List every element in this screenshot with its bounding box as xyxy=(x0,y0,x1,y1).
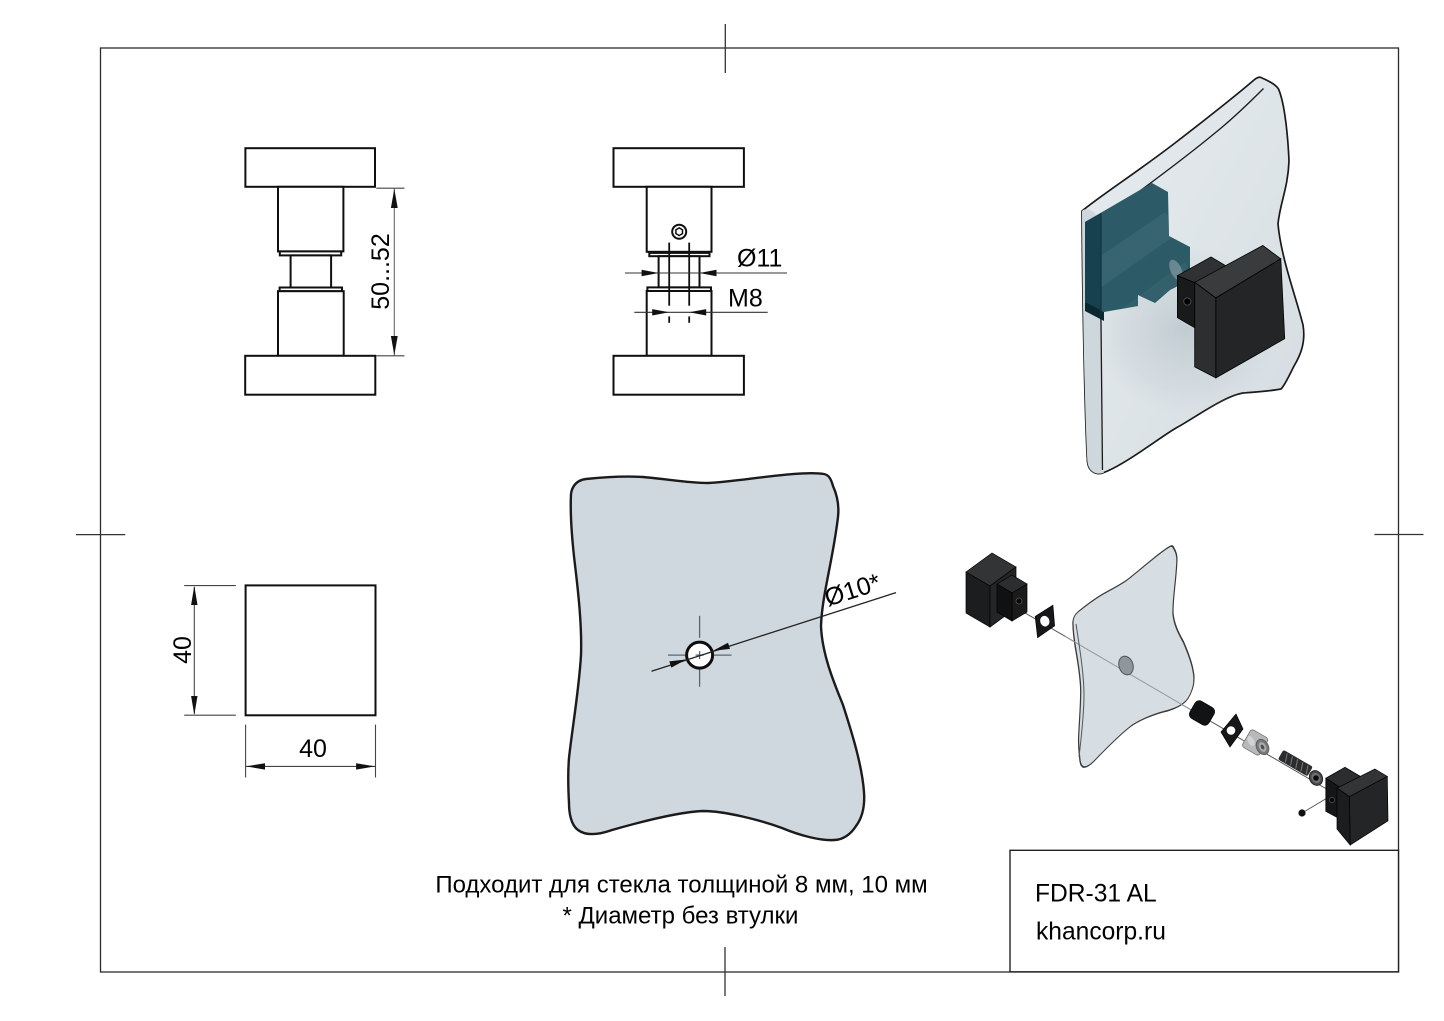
svg-text:FDR-31 AL: FDR-31 AL xyxy=(1035,880,1157,907)
svg-text:40: 40 xyxy=(169,636,197,664)
svg-text:Ø11: Ø11 xyxy=(737,244,782,272)
svg-text:50...52: 50...52 xyxy=(367,233,395,309)
svg-text:40: 40 xyxy=(299,735,327,763)
svg-text:* Диаметр без втулки: * Диаметр без втулки xyxy=(563,903,799,930)
svg-text:khancorp.ru: khancorp.ru xyxy=(1036,919,1166,946)
svg-text:M8: M8 xyxy=(728,285,763,313)
svg-text:Подходит для стекла толщиной 8: Подходит для стекла толщиной 8 мм, 10 мм xyxy=(435,872,927,899)
